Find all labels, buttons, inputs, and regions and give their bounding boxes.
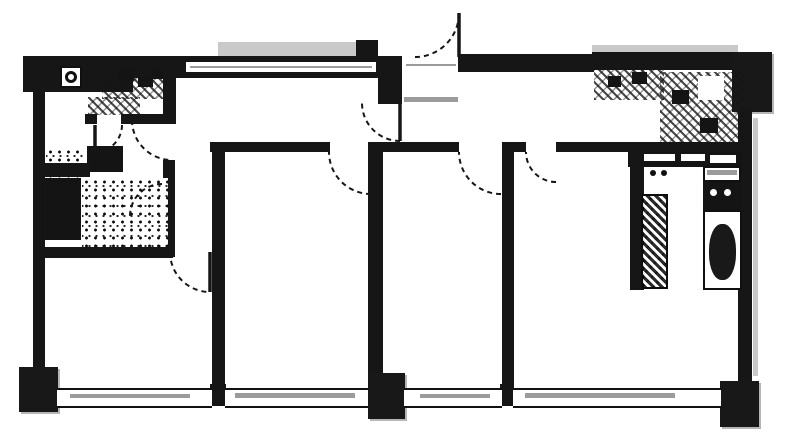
room2-door-swing (459, 152, 501, 194)
bathroom-door-swing (130, 184, 162, 216)
door-swing-layer (0, 0, 787, 447)
washroom-door-swing (132, 120, 172, 160)
entry-door-swing (415, 13, 459, 57)
bedroom-left-door-swing (170, 252, 210, 292)
floor-plan (0, 0, 787, 447)
ldk-door-swing (526, 152, 556, 182)
genkan-door-swing (362, 103, 400, 141)
room1-door-swing (329, 152, 371, 194)
wc-door-swing (95, 125, 122, 152)
